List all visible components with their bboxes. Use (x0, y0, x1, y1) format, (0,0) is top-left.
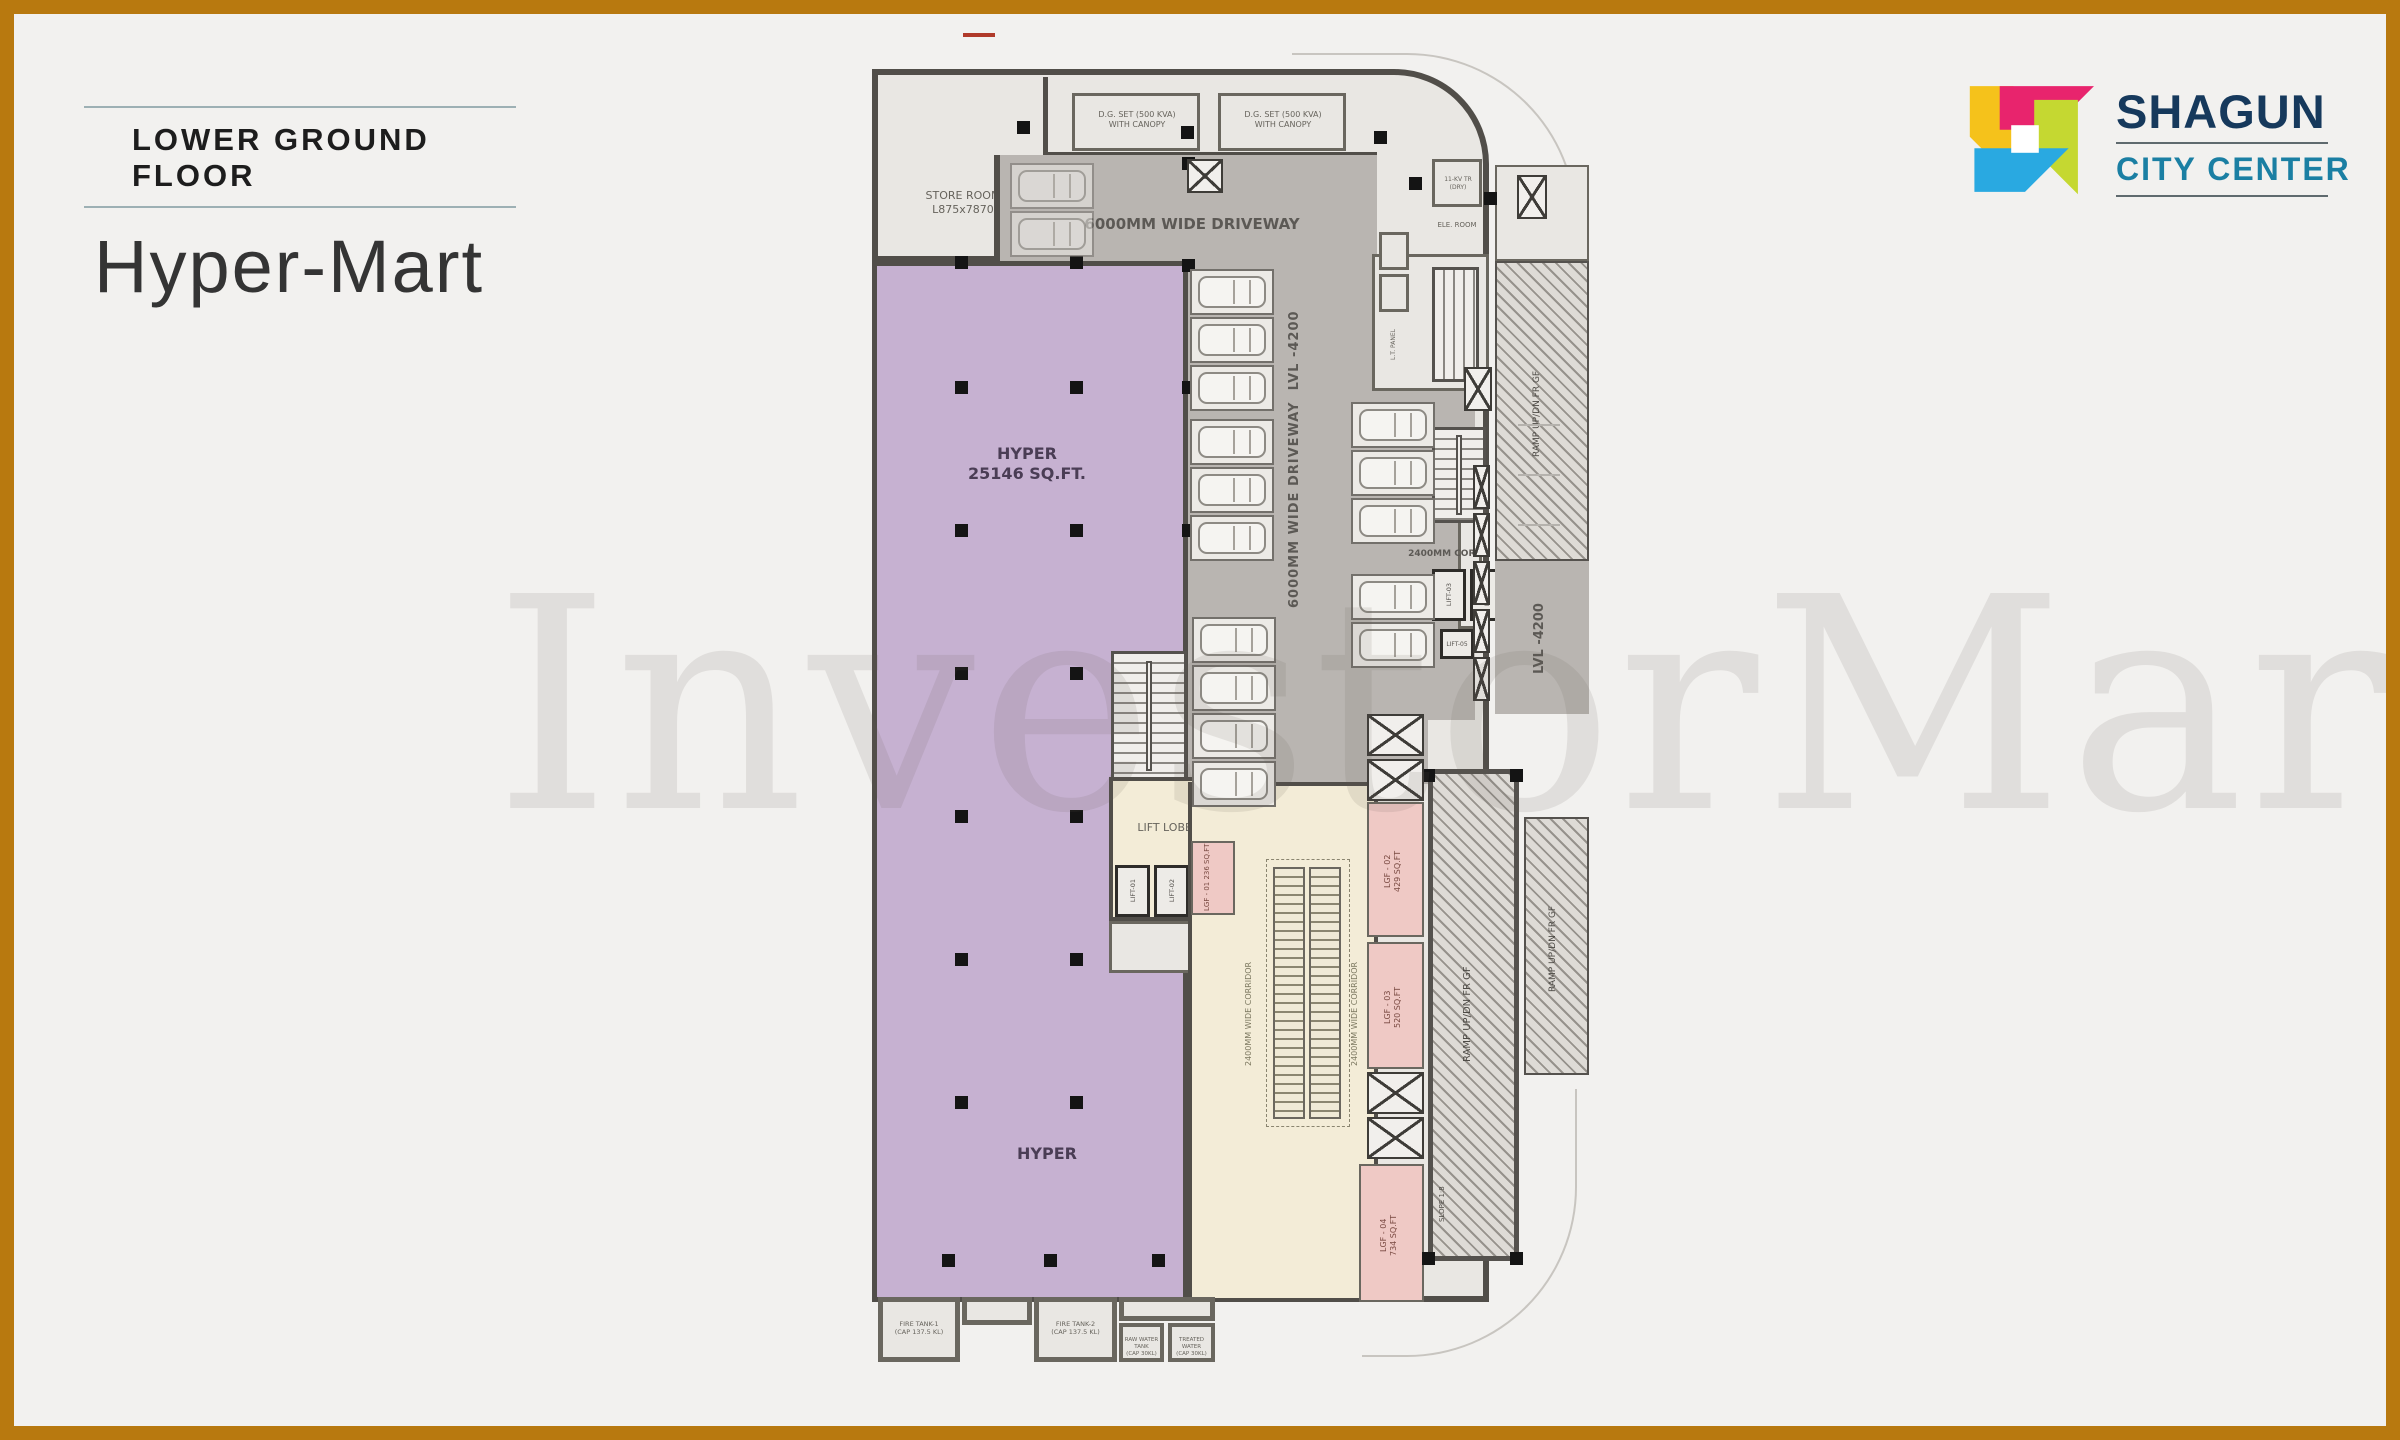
structural-column (1484, 192, 1497, 205)
ramp-top-right-label: RAMP UP/DN FR GF (1532, 299, 1543, 529)
red-survey-mark (963, 33, 995, 37)
parking-spot (1351, 498, 1435, 544)
parking-spot (1192, 713, 1276, 759)
structural-column (1070, 1096, 1083, 1109)
car-icon (1200, 768, 1268, 800)
structural-column (1070, 667, 1083, 680)
central-staircase (1111, 651, 1187, 781)
fire-tank-2: FIRE TANK-2(CAP 137.5 KL) (1034, 1297, 1117, 1362)
unit-lgf-01: LGF - 01 236 SQ.FT (1191, 841, 1235, 915)
stair-rail (1146, 661, 1152, 770)
parking-spot (1190, 419, 1274, 465)
car-icon (1200, 720, 1268, 752)
unit-lgf-04-label: LGF - 04734 SQ.FT (1379, 1176, 1399, 1294)
shaft-box-icon (1473, 513, 1490, 557)
shaft-box-icon (1367, 759, 1424, 801)
parking-spot (1010, 211, 1094, 257)
parking-spot (1190, 467, 1274, 513)
shaft-box-icon (1473, 561, 1490, 605)
page-title: Hyper-Mart (84, 208, 516, 309)
lift-03: LIFT-03 (1432, 569, 1466, 621)
parking-spot (1192, 761, 1276, 807)
parking-spot (1351, 450, 1435, 496)
shaft-box-icon (1473, 465, 1490, 509)
brand-rule-2 (2116, 195, 2328, 197)
leader-line-1 (1518, 424, 1560, 426)
shaft-box-icon (1187, 159, 1223, 193)
parking-spot (1190, 365, 1274, 411)
parking-spot (1351, 574, 1435, 620)
shaft-box-icon (1473, 609, 1490, 653)
structural-column (955, 256, 968, 269)
structural-column (1181, 126, 1194, 139)
dg-set-2-label: D.G. SET (500 KVA)WITH CANOPY (1221, 110, 1345, 130)
parking-spot (1351, 622, 1435, 668)
shaft-box-icon (1464, 367, 1492, 411)
driveway-left-wall (994, 155, 1000, 267)
structural-column (1152, 1254, 1165, 1267)
corridor-label-left: 2400MM WIDE CORRIDOR (1244, 909, 1254, 1119)
unit-lgf-02: LGF - 02429 SQ.FT (1367, 802, 1424, 937)
hyper-label: HYPER25146 SQ.FT. (927, 444, 1127, 484)
structural-column (955, 1096, 968, 1109)
structural-column (1070, 256, 1083, 269)
parking-spot (1190, 317, 1274, 363)
shaft-box-icon (1367, 714, 1424, 756)
parking-spot (1192, 617, 1276, 663)
structural-column (1510, 1252, 1523, 1265)
lift-05: LIFT-05 (1440, 629, 1474, 659)
lt-panel-1 (1379, 232, 1409, 270)
car-icon (1018, 218, 1086, 250)
raw-water-tank: RAW WATER TANK(CAP 30KL) (1119, 1323, 1164, 1362)
escalator-outline (1266, 859, 1350, 1127)
tr-box-1-label: 11-KV TR(DRY) (1435, 176, 1481, 191)
structural-column (955, 810, 968, 823)
stair-rail-2 (1456, 435, 1462, 514)
structural-column (1374, 131, 1387, 144)
fire-tank-1: FIRE TANK-1(CAP 137.5 KL) (878, 1297, 960, 1362)
car-icon (1198, 522, 1266, 554)
floor-label: LOWER GROUND FLOOR (84, 108, 516, 206)
corridor-label-right: 2400MM WIDE CORRIDOR (1350, 909, 1360, 1119)
car-icon (1198, 474, 1266, 506)
pump-room (962, 1297, 1032, 1325)
car-icon (1359, 581, 1427, 613)
parking-spot (1190, 269, 1274, 315)
shaft-box-icon (1367, 1117, 1424, 1159)
fire-tank-2-label: FIRE TANK-2(CAP 137.5 KL) (1039, 1320, 1112, 1336)
car-icon (1018, 170, 1086, 202)
structural-column (1070, 381, 1083, 394)
structural-column (1409, 177, 1422, 190)
unit-lgf-02-label: LGF - 02429 SQ.FT (1383, 812, 1403, 930)
tr-box-1: 11-KV TR(DRY) (1432, 159, 1482, 207)
lt-panel-label: L.T. PANEL (1390, 315, 1398, 375)
shaft-box-icon (1517, 175, 1547, 219)
ramp-main-slope-label: SLOPE 1:8 (1438, 1159, 1447, 1249)
lift-05-label: LIFT-05 (1446, 641, 1467, 648)
structural-column (1070, 953, 1083, 966)
hyper-lower-label: HYPER (962, 1144, 1132, 1164)
car-icon (1359, 505, 1427, 537)
unit-lgf-03: LGF - 03520 SQ.FT (1367, 942, 1424, 1069)
structural-column (955, 524, 968, 537)
dg-set-2: D.G. SET (500 KVA)WITH CANOPY (1218, 93, 1346, 151)
shaft-box-icon (1367, 1072, 1424, 1114)
lift-03-label: LIFT-03 (1445, 583, 1453, 606)
shaft-box-icon (1473, 657, 1490, 701)
structural-column (1070, 810, 1083, 823)
unit-lgf-01-label: LGF - 01 236 SQ.FT (1203, 847, 1212, 911)
structural-column (955, 953, 968, 966)
lift-02: LIFT-02 (1154, 865, 1189, 917)
unit-lgf-04: LGF - 04734 SQ.FT (1359, 1164, 1424, 1302)
brand-subname: CITY CENTER (2116, 151, 2351, 188)
structural-column (1044, 1254, 1057, 1267)
car-icon (1359, 457, 1427, 489)
leader-line-2 (1518, 474, 1560, 476)
tank-lobby (1119, 1297, 1215, 1321)
upper-right-staircase (1432, 267, 1479, 382)
lvl-strip-label: LVL -4200 (1532, 579, 1548, 699)
car-icon (1198, 372, 1266, 404)
driveway-side-label: 6000MM WIDE DRIVEWAY LVL -4200 (1287, 309, 1303, 609)
parking-spot (1192, 665, 1276, 711)
shagun-pinwheel-logo-icon (1956, 70, 2094, 208)
brand-text: SHAGUN CITY CENTER (2116, 70, 2351, 208)
treated-water-tank: TREATED WATER(CAP 30KL) (1168, 1323, 1215, 1362)
ramp-main-label: RAMP UP/DN FR GF (1462, 849, 1475, 1179)
structural-column (942, 1254, 955, 1267)
structural-column (1510, 769, 1523, 782)
structural-column (1070, 524, 1083, 537)
driveway-top-label: 6000MM WIDE DRIVEWAY (1062, 215, 1322, 234)
lift-01-label: LIFT-01 (1129, 879, 1137, 902)
brand-block: SHAGUN CITY CENTER (1956, 70, 2351, 208)
parking-spot (1351, 402, 1435, 448)
lift-02-label: LIFT-02 (1168, 879, 1176, 902)
lift-01: LIFT-01 (1115, 865, 1150, 917)
car-icon (1198, 426, 1266, 458)
structural-column (955, 381, 968, 394)
car-icon (1200, 624, 1268, 656)
title-block: LOWER GROUND FLOOR Hyper-Mart (84, 106, 516, 309)
structural-column (955, 667, 968, 680)
unit-lgf-03-label: LGF - 03520 SQ.FT (1383, 952, 1403, 1062)
car-icon (1359, 629, 1427, 661)
leader-line-3 (1518, 524, 1560, 526)
page-frame: LOWER GROUND FLOOR Hyper-Mart SHAGUN CIT… (0, 0, 2400, 1440)
car-icon (1359, 409, 1427, 441)
raw-water-tank-label: RAW WATER TANK(CAP 30KL) (1123, 1337, 1160, 1358)
car-icon (1200, 672, 1268, 704)
dg-set-1: D.G. SET (500 KVA)WITH CANOPY (1072, 93, 1200, 151)
car-icon (1198, 324, 1266, 356)
brand-name: SHAGUN (2116, 88, 2351, 135)
fire-tank-1-label: FIRE TANK-1(CAP 137.5 KL) (883, 1320, 955, 1336)
treated-water-tank-label: TREATED WATER(CAP 30KL) (1172, 1337, 1211, 1358)
ele-room-label: ELE. ROOM (1424, 221, 1490, 230)
lt-panel-2 (1379, 274, 1409, 312)
ramp-right-label: RAMP UP/DN FR GF (1548, 859, 1559, 1039)
parking-spot (1010, 163, 1094, 209)
brand-rule-1 (2116, 142, 2328, 144)
car-icon (1198, 276, 1266, 308)
parking-spot (1190, 515, 1274, 561)
structural-column (1422, 1252, 1435, 1265)
floor-plan: STORE ROOML875x7870 D.G. SET (500 KVA)WI… (872, 69, 1594, 1369)
structural-column (1017, 121, 1030, 134)
